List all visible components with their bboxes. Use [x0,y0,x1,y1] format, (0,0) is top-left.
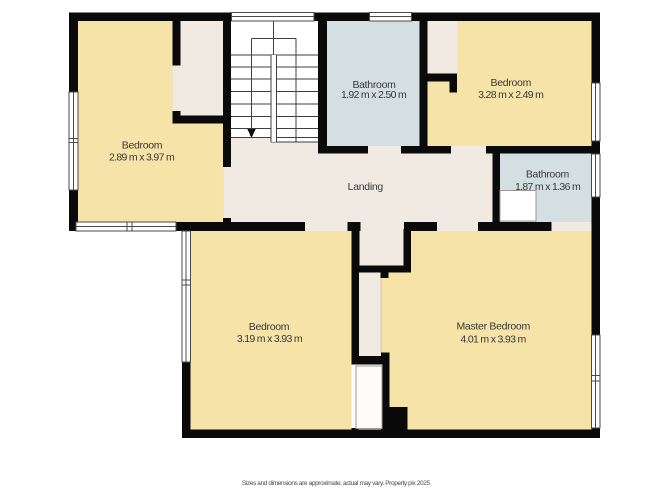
svg-text:Bedroom: Bedroom [249,321,290,333]
svg-text:1.92 m x 2.50 m: 1.92 m x 2.50 m [341,89,407,101]
svg-text:Bedroom: Bedroom [122,139,163,151]
svg-text:Sizes and dimensions are appro: Sizes and dimensions are approximate, ac… [242,480,431,487]
svg-text:Bedroom: Bedroom [491,77,532,89]
svg-text:Master Bedroom: Master Bedroom [456,321,530,333]
svg-text:4.01 m x 3.93 m: 4.01 m x 3.93 m [460,333,526,345]
svg-text:2.89 m x 3.97 m: 2.89 m x 3.97 m [109,152,175,164]
svg-text:Bathroom: Bathroom [526,169,570,181]
svg-text:1.87 m x 1.36 m: 1.87 m x 1.36 m [515,181,581,193]
svg-text:3.19 m x 3.93 m: 3.19 m x 3.93 m [237,333,303,345]
svg-text:3.28 m x 2.49 m: 3.28 m x 2.49 m [478,89,544,101]
svg-text:Landing: Landing [348,181,384,193]
